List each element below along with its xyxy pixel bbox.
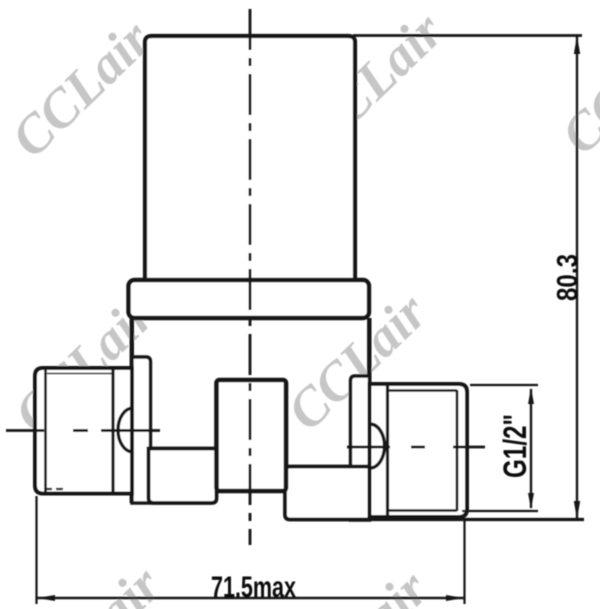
svg-text:80.3: 80.3 [552,254,584,301]
svg-text:G1/2": G1/2" [497,414,533,478]
svg-text:71.5max: 71.5max [211,571,296,604]
